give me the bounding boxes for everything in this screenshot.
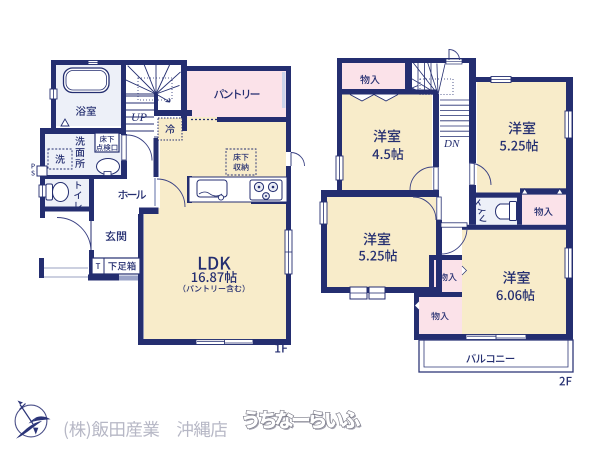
svg-text:DN: DN bbox=[443, 138, 460, 150]
svg-text:UP: UP bbox=[131, 110, 148, 124]
